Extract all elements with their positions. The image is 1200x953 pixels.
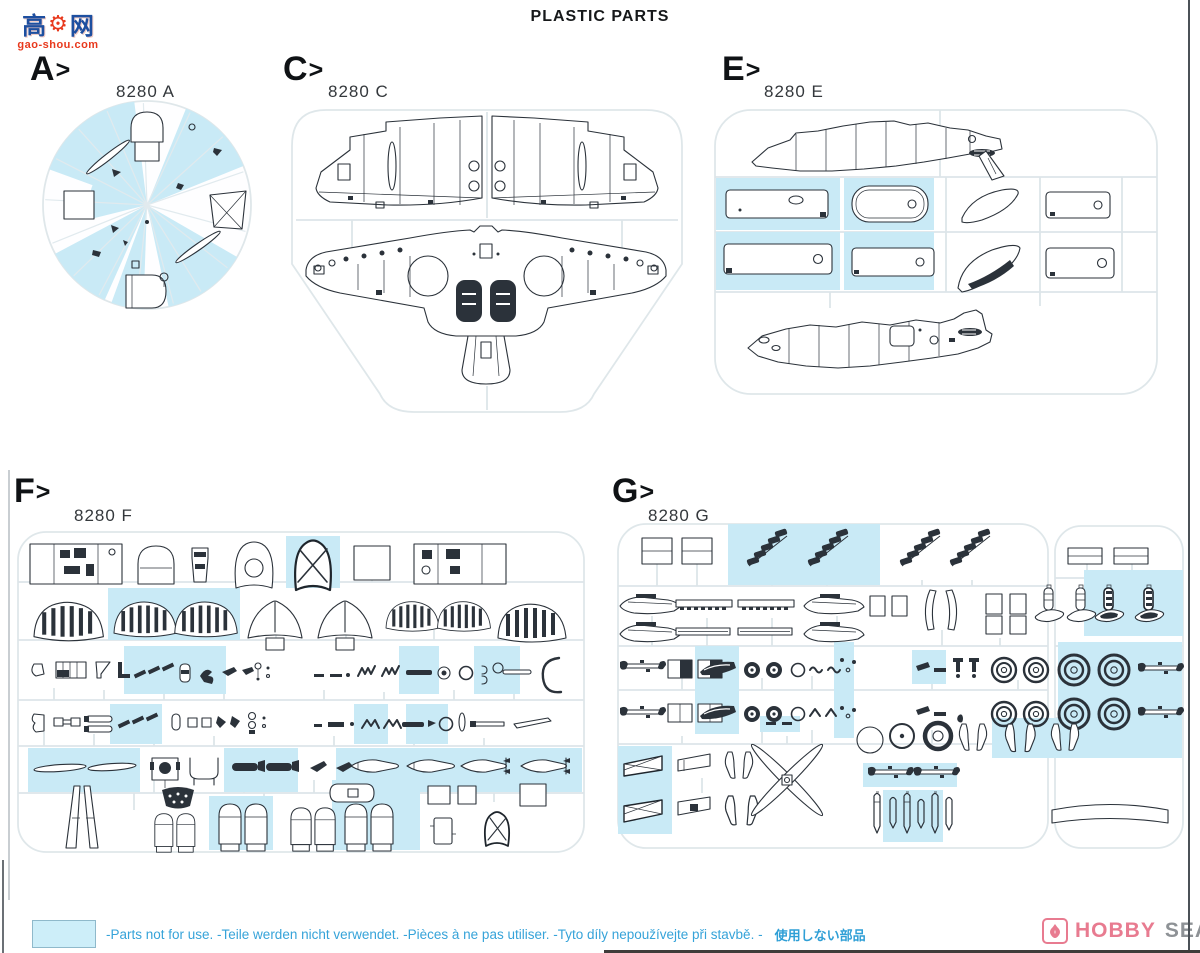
hobby-search-logo: HOBBY SEARCH: [1042, 918, 1200, 944]
watermark-domain: gao-shou.com: [8, 39, 108, 51]
section-c-arrow: >: [309, 56, 324, 84]
upper-wing-part: [316, 116, 482, 208]
logo-text-hobby: HOBBY: [1075, 919, 1156, 943]
intake-and-bomb-parts: [620, 585, 1164, 642]
section-e-letter: E: [722, 50, 745, 88]
scan-edge-right: [1188, 0, 1190, 953]
propeller-and-hub-parts: [624, 723, 1079, 825]
fuselage-half-right: [752, 121, 1004, 180]
section-c-header: C>: [283, 52, 323, 86]
exhaust-and-panel-parts: [642, 528, 1148, 566]
section-g-letter: G: [612, 472, 638, 510]
scan-edge-left-light: [8, 470, 10, 900]
not-for-use-text: -Parts not for use. -Teile werden nicht …: [106, 927, 763, 942]
fuselage-half-left: [748, 310, 992, 368]
section-a-header: A>: [30, 52, 70, 86]
section-f-letter: F: [14, 472, 35, 510]
section-f-header: F>: [14, 474, 50, 508]
canopy-hood-parts: [66, 784, 546, 852]
not-for-use-text-jp: 使用しない部品: [775, 925, 866, 944]
section-g-arrow: >: [639, 478, 654, 506]
page-title: PLASTIC PARTS: [0, 8, 1200, 26]
legend: -Parts not for use. -Teile werden nicht …: [32, 920, 866, 948]
section-g-header: G>: [612, 474, 654, 508]
section-c-letter: C: [283, 50, 308, 88]
scan-edge-left-dark: [2, 860, 4, 953]
section-a-letter: A: [30, 50, 55, 88]
sprue-a-diagram: [30, 95, 265, 320]
sprue-e-diagram: [710, 92, 1160, 397]
not-for-use-highlights: [618, 524, 1183, 842]
cockpit-and-canopy-parts: [30, 541, 506, 591]
sprue-f-diagram: [14, 518, 590, 858]
section-e-header: E>: [722, 52, 760, 86]
sprue-g-diagram: [612, 518, 1190, 858]
sprue-c-diagram: [288, 94, 686, 426]
logo-text-search: SEARCH: [1165, 919, 1200, 943]
flame-icon: [1042, 918, 1068, 944]
section-a-arrow: >: [56, 56, 71, 84]
section-f-arrow: >: [36, 478, 51, 506]
lower-wing-part: [306, 226, 666, 384]
section-e-arrow: >: [746, 56, 761, 84]
not-for-use-swatch: [32, 920, 96, 948]
